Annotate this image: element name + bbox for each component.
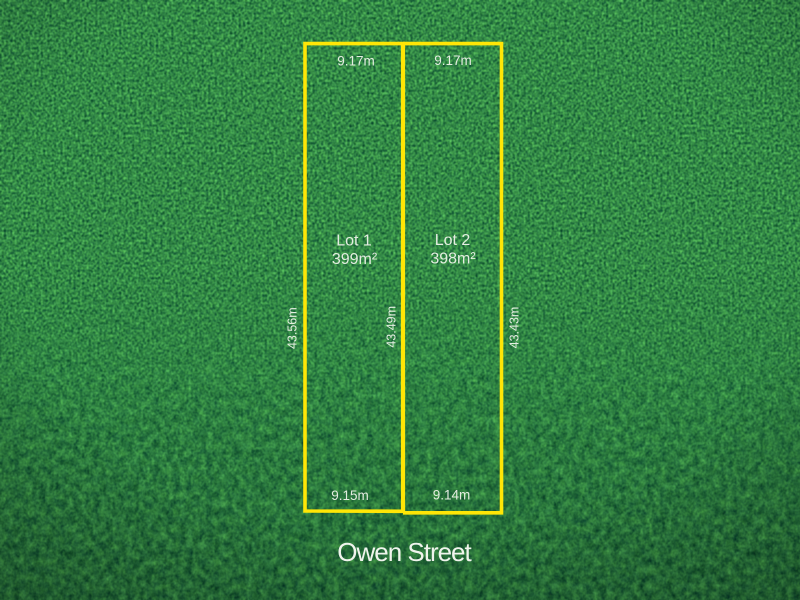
svg-text:43.43m: 43.43m [508, 307, 522, 349]
svg-text:Lot 1: Lot 1 [336, 233, 372, 250]
svg-text:9.15m: 9.15m [331, 488, 369, 503]
svg-text:Lot 2: Lot 2 [435, 232, 471, 249]
svg-text:Owen Street: Owen Street [337, 537, 472, 567]
svg-text:43.49m: 43.49m [385, 306, 399, 348]
svg-text:399m²: 399m² [332, 251, 378, 268]
svg-text:9.17m: 9.17m [434, 53, 472, 68]
svg-text:398m²: 398m² [430, 251, 476, 268]
svg-text:9.14m: 9.14m [433, 488, 471, 503]
svg-text:43.56m: 43.56m [286, 307, 300, 349]
svg-text:9.17m: 9.17m [337, 54, 375, 69]
